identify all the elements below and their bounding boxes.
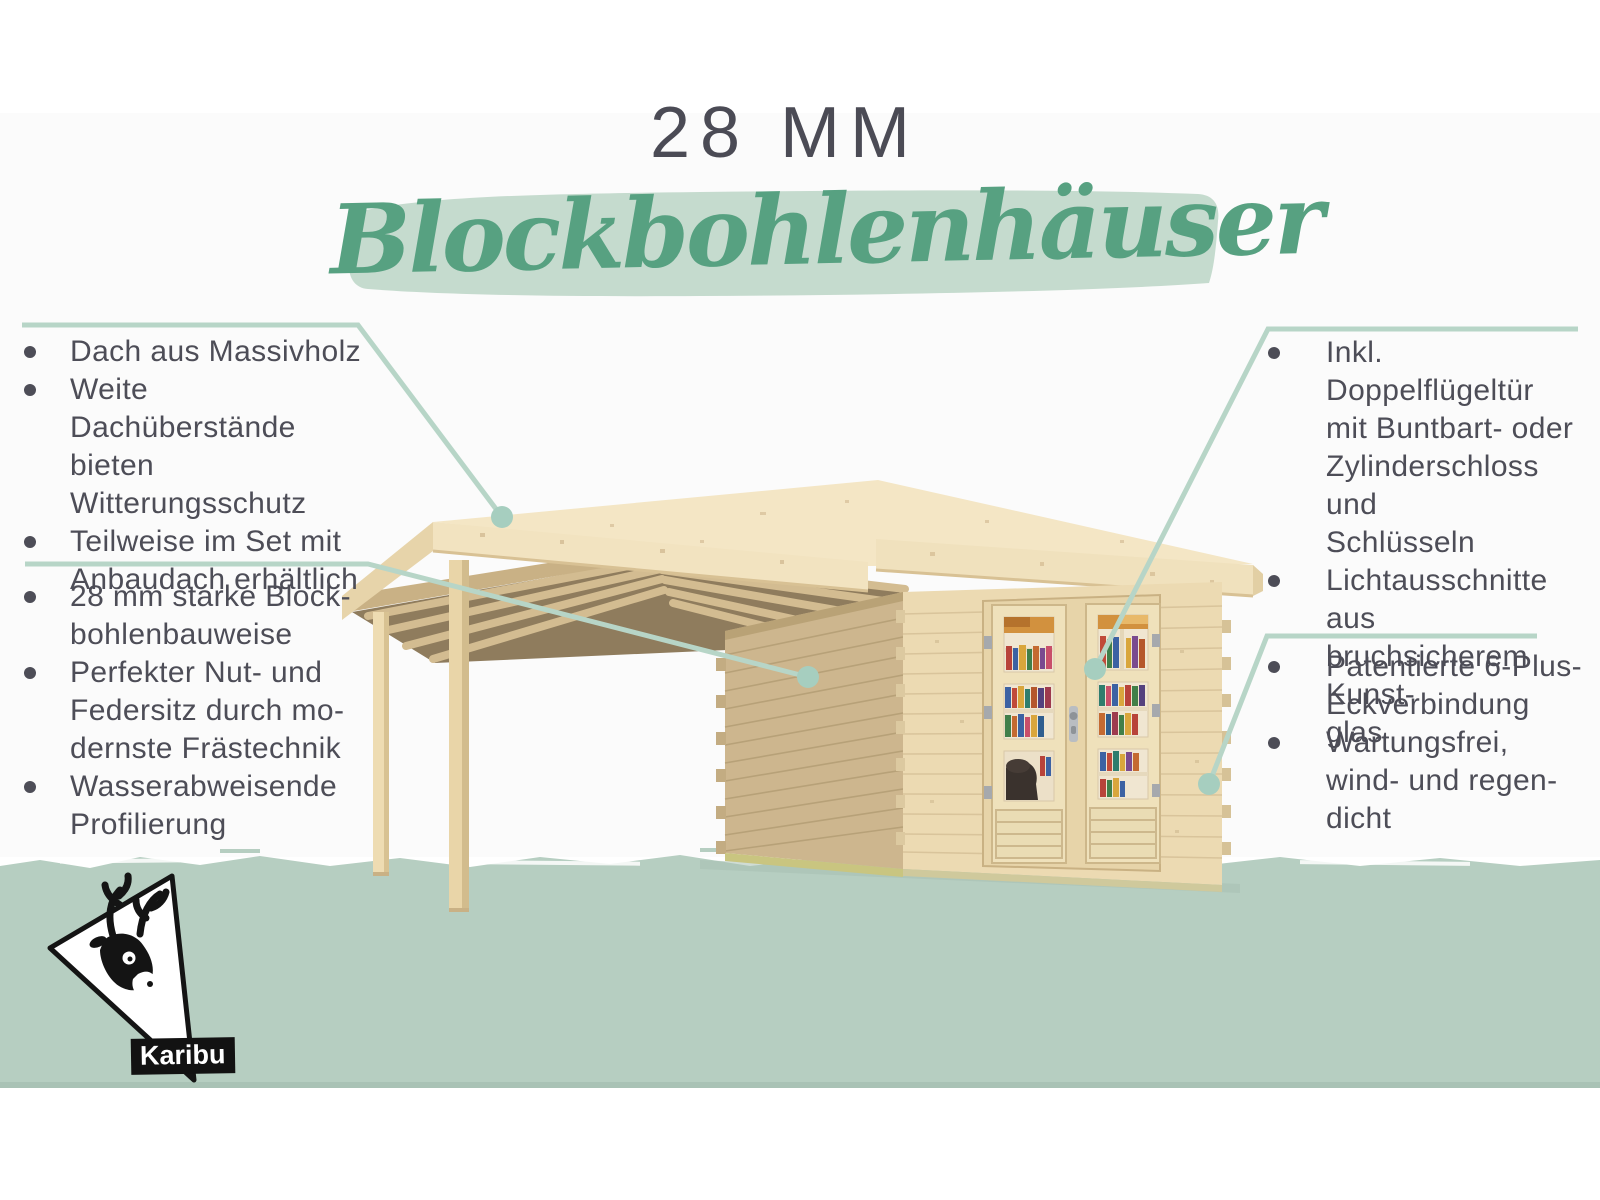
bullet-icon	[1266, 334, 1326, 562]
list-item: Patentierte 6-Plus- Eckverbindung	[1266, 648, 1586, 724]
door-left-glass	[1004, 617, 1054, 801]
door-right-glass	[1098, 615, 1148, 799]
list-item: Wartungsfrei, wind- und regen- dicht	[1266, 724, 1586, 838]
infographic-page: 28 MM Blockbohlenhäuser Dach aus Massivh…	[0, 0, 1600, 1200]
bullet-icon	[22, 371, 70, 523]
page-title-size: 28 MM	[350, 92, 1220, 174]
list-item: Dach aus Massivholz	[22, 333, 382, 371]
list-item: Wasserabweisende Profilierung	[22, 768, 382, 844]
bullet-icon	[1266, 648, 1326, 724]
callout-list-corner: Patentierte 6-Plus- Eckverbindung Wartun…	[1266, 648, 1586, 838]
bullet-icon	[22, 333, 70, 371]
double-door	[983, 595, 1160, 871]
bullet-icon	[22, 578, 70, 654]
callout-list-walls: 28 mm starke Block- bohlenbauweise Perfe…	[22, 578, 382, 844]
list-item: Perfekter Nut- und Federsitz durch mo- d…	[22, 654, 382, 768]
ground-band	[0, 848, 1600, 1088]
list-item: 28 mm starke Block- bohlenbauweise	[22, 578, 382, 654]
list-item: Inkl. Doppelflügeltür mit Buntbart- oder…	[1266, 334, 1586, 562]
door-handle	[1069, 706, 1078, 742]
bullet-icon	[1266, 724, 1326, 838]
callout-list-roof: Dach aus Massivholz Weite Dachüberstände…	[22, 333, 382, 599]
side-wall	[716, 592, 903, 877]
page-title-product-line: Blockbohlenhäuser	[329, 166, 1241, 295]
bullet-icon	[22, 768, 70, 844]
list-item: Weite Dachüberstände bieten Witterungssc…	[22, 371, 382, 523]
bullet-icon	[22, 654, 70, 768]
brand-wordmark: Karibu	[131, 1037, 235, 1075]
